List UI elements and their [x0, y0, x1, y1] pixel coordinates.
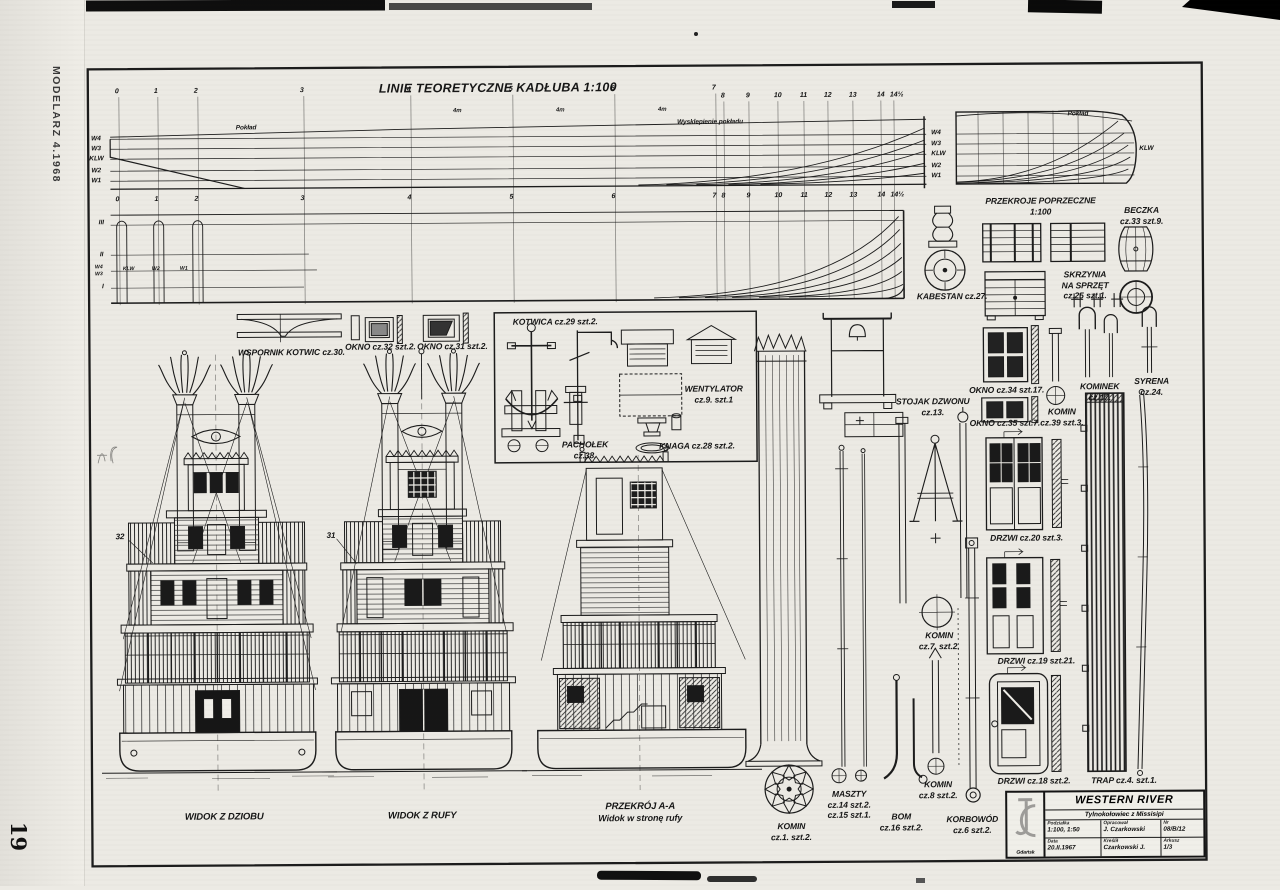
station-number: 1: [154, 196, 158, 203]
label-line: cz.14 szt.2.: [789, 799, 909, 810]
station-number: 5: [509, 194, 513, 201]
part-drzwi-18: [989, 664, 1061, 773]
view-stern: [319, 348, 527, 792]
label-line: KOMIN: [731, 821, 851, 832]
part-drzwi-20: [986, 428, 1069, 529]
part-kabestan: [925, 206, 966, 290]
part-maszty: [830, 445, 867, 783]
waterline-label: W3: [91, 145, 101, 152]
station-number: 6: [611, 85, 615, 92]
title-block-cell: Nr 08/B/12: [1161, 820, 1203, 838]
station-number: 14: [877, 91, 885, 98]
model-title: WESTERN RIVER: [1045, 792, 1203, 811]
part-spar: [1135, 389, 1150, 775]
part-komin-8: [927, 648, 944, 774]
title-block-grid: Podziałka 1:100, 1:50 Opracował J. Czark…: [1045, 820, 1203, 857]
label-line: KOMIN: [1032, 406, 1092, 417]
publisher-city: Gdańsk: [1007, 850, 1043, 856]
dimension-label: 4m: [453, 108, 462, 114]
part-syrena: [1141, 307, 1157, 373]
dimension-label: 4m: [556, 107, 565, 113]
field-value: 20.II.1967: [1047, 844, 1098, 851]
label-line: cz.7. szt.2.: [879, 640, 999, 651]
label-line: KOMIN: [879, 630, 999, 641]
station-number: 5: [509, 86, 513, 93]
part-label-trap: TRAP cz.4. szt.1.: [1064, 775, 1184, 786]
station-number: 9: [746, 92, 750, 99]
part-komin-1: [743, 334, 822, 813]
view-section-aa: [520, 446, 762, 790]
label-line: cz.8 szt.2.: [908, 790, 968, 801]
waterline-label: W2: [931, 162, 941, 169]
station-number: 10: [774, 92, 782, 99]
station-number: 3: [300, 87, 304, 94]
part-label-kotwica: KOTWICA cz.29 szt.2.: [495, 316, 615, 327]
waterline-label: W4: [95, 264, 103, 270]
waterline-label: W1: [91, 177, 101, 184]
part-okno-31: [423, 313, 468, 343]
waterline-label: W2: [91, 167, 101, 174]
field-value: Czarkowski J.: [1103, 844, 1158, 851]
station-number: 14: [877, 191, 885, 198]
part-tripod-stand: [909, 435, 963, 543]
waterline-label: KLW: [89, 155, 103, 162]
waterline-label: KLW: [931, 150, 945, 157]
part-wspornik-kotwic: [237, 314, 359, 343]
view-caption-stern: WIDOK Z RUFY: [352, 810, 492, 823]
waterline-label: W4: [931, 129, 941, 136]
label-line: WENTYLATOR: [654, 383, 774, 394]
drawing-sheet: LINIE TEORETYCZNE KADŁUBA 1:100 Pokład W…: [0, 0, 1280, 890]
label-line: STOJAK DZWONU: [873, 396, 993, 407]
title-block-cell: Data 20.II.1967: [1045, 838, 1101, 856]
station-number: 3: [300, 195, 304, 202]
hull-body-plan: [956, 110, 1136, 184]
scanned-blueprint-page: { "page": {"magazine": "MODELARZ 4.1968"…: [0, 0, 1280, 886]
waterline-label: W3: [931, 140, 941, 147]
label-line: cz.38.: [525, 450, 645, 461]
part-bom: [883, 674, 927, 783]
station-number: 14½: [890, 91, 904, 98]
handwritten-note: [97, 447, 117, 463]
part-label-komin1: KOMIN cz.1. szt.2.: [731, 821, 851, 843]
station-number: 8: [721, 92, 725, 99]
part-label-drzwi20: DRZWI cz.20 szt.3.: [967, 532, 1087, 543]
label-line: cz.9. szt.1: [654, 394, 774, 405]
label-line: PRZEKRÓJ A-A: [570, 801, 710, 814]
waterline-label: W3: [95, 271, 103, 277]
label-line: Widok w stronę rufy: [570, 812, 710, 824]
part-label-okno31: OKNO cz.31 szt.2.: [402, 341, 502, 352]
label-line: KOMIN: [908, 779, 968, 790]
part-label-wentylator: WENTYLATOR cz.9. szt.1: [654, 383, 774, 405]
part-label-stojak: STOJAK DZWONU cz.13.: [873, 396, 993, 418]
part-stojak-dzwonu: [819, 312, 903, 437]
label-line: BECZKA: [1082, 205, 1202, 216]
part-label-skrzynia: SKRZYNIA NA SPRZĘT cz.25 szt.1.: [1049, 269, 1121, 301]
section-label: I: [102, 283, 104, 290]
title-block: Gdańsk WESTERN RIVER Tylnokołowiec z Mis…: [1005, 790, 1205, 859]
part-label-kabestan: KABESTAN cz.27.: [892, 291, 1012, 302]
waterline-label: W2: [152, 266, 160, 272]
waterline-label: W4: [91, 135, 101, 142]
label-line: cz.25 szt.1.: [1049, 290, 1121, 301]
view-bow: [99, 350, 337, 793]
hull-profile-plan: [111, 210, 905, 303]
part-label-drzwi19: DRZWI cz.19 szt.21.: [976, 655, 1096, 666]
title-block-main: WESTERN RIVER Tylnokołowiec z Missisipi …: [1045, 792, 1203, 857]
section-label: II: [100, 251, 104, 258]
part-label-komin8: KOMIN cz.8 szt.2.: [908, 779, 968, 801]
view-caption-bow: WIDOK Z DZIOBU: [154, 811, 294, 824]
station-number: 0: [115, 196, 119, 203]
station-number: 10: [774, 192, 782, 199]
part-okno-34: [983, 326, 1038, 384]
label-line: cz.39 szt.3.: [1032, 417, 1092, 428]
station-number: 7: [712, 193, 716, 200]
cross-sections: [983, 223, 1105, 262]
deck-label: Pokład: [226, 124, 266, 132]
callout-number: 31: [327, 531, 336, 540]
label-line: SKRZYNIA: [1049, 269, 1121, 280]
waterline-label: KLW: [123, 266, 135, 272]
label-line: PACHOŁEK: [525, 439, 645, 450]
part-label-knaga: KNAGA cz.28 szt.2.: [637, 440, 757, 451]
label-line: MASZTY: [789, 788, 909, 799]
label-line: cz.24.: [1122, 386, 1182, 397]
callout-number: 32: [116, 532, 125, 541]
station-number: 1: [154, 88, 158, 95]
station-number: 11: [800, 192, 807, 199]
part-beczka: [1119, 227, 1154, 313]
station-number: 11: [800, 92, 807, 99]
title-block-cell: Opracował J. Czarkowski: [1101, 820, 1161, 838]
station-number: 13: [849, 92, 857, 99]
station-number: 14½: [890, 191, 904, 198]
part-trap: [1081, 393, 1126, 771]
field-value: 08/B/12: [1163, 826, 1201, 833]
station-number: 4: [407, 194, 411, 201]
station-number: 8: [721, 192, 725, 199]
waterline-label: W1: [180, 266, 188, 272]
part-label-okno34: OKNO cz.34 szt.17.: [947, 384, 1067, 395]
deck-label: Pokład: [1048, 110, 1108, 118]
station-number: 2: [194, 88, 198, 95]
section-label: III: [99, 219, 104, 226]
station-number: 0: [115, 88, 119, 95]
view-caption-section: PRZEKRÓJ A-A Widok w stronę rufy: [570, 801, 710, 825]
station-number: 13: [849, 192, 857, 199]
station-number: 2: [194, 196, 198, 203]
waterline-label: W1: [931, 172, 941, 179]
station-number: 6: [611, 193, 615, 200]
part-okno-32: [365, 315, 402, 343]
title-block-logo-cell: Gdańsk: [1007, 793, 1045, 857]
title-block-cell: Kreślił Czarkowski J.: [1101, 838, 1161, 856]
part-label-komin7: KOMIN cz.7. szt.2.: [879, 630, 999, 652]
sheet-title: LINIE TEORETYCZNE KADŁUBA 1:100: [378, 80, 618, 97]
part-kominek: [1079, 307, 1117, 377]
station-number: 7: [712, 85, 716, 92]
part-label-syrena: SYRENA cz.24.: [1122, 376, 1182, 398]
part-label-komin39: KOMIN cz.39 szt.3.: [1032, 406, 1092, 428]
part-label-pacholek: PACHOŁEK cz.38.: [525, 439, 645, 461]
title-block-cell: Podziałka 1:100, 1:50: [1045, 820, 1101, 838]
label-line: cz.33 szt.9.: [1082, 215, 1202, 226]
station-number: 4: [407, 86, 411, 93]
label-line: cz.13.: [873, 406, 993, 417]
dimension-label: 4m: [658, 107, 667, 113]
station-number: 12: [824, 92, 832, 99]
waterline-label: KLW: [1139, 145, 1153, 152]
deck-camber-label: Wysklepienie pokładu: [660, 118, 760, 127]
part-label-beczka: BECZKA cz.33 szt.9.: [1082, 205, 1202, 227]
field-value: J. Czarkowski: [1103, 826, 1158, 833]
station-number: 12: [824, 192, 832, 199]
label-line: NA SPRZĘT: [1049, 280, 1121, 291]
label-line: cz.1. szt.2.: [731, 831, 851, 842]
label-line: SYRENA: [1122, 376, 1182, 387]
station-number: 9: [746, 192, 750, 199]
field-value: 1:100, 1:50: [1047, 826, 1098, 833]
field-value: 1/3: [1163, 844, 1201, 851]
title-block-cell: Arkusz 1/3: [1161, 838, 1203, 856]
